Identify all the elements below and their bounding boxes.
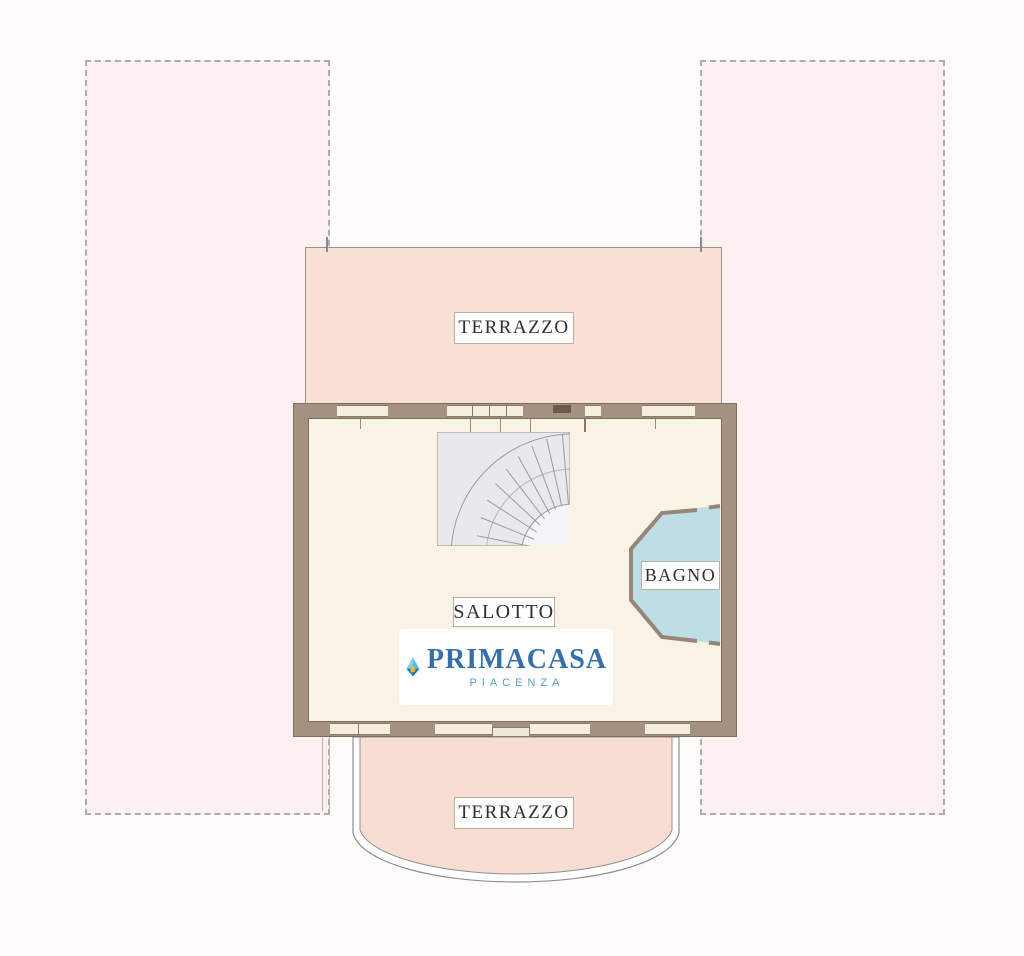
terrace-bottom-label: TERRAZZO (454, 797, 574, 829)
window (585, 405, 601, 417)
logo-text: PRIMACASA PIACENZA (427, 646, 607, 689)
window-sill-line (655, 419, 656, 429)
window-mullion (358, 723, 359, 735)
terrace-top-label-text: TERRAZZO (458, 317, 569, 339)
window-mullion (489, 405, 490, 417)
agency-logo: PRIMACASA PIACENZA (399, 629, 613, 705)
side-step-line (329, 737, 330, 811)
window-sill-line (500, 419, 501, 433)
staircase (437, 432, 570, 546)
window (447, 405, 523, 417)
bathroom-label: BAGNO (641, 561, 720, 590)
window (337, 405, 388, 417)
brand-name: PRIMACASA (427, 646, 607, 674)
partition-stub (584, 419, 586, 432)
side-step-line (322, 737, 323, 811)
window (530, 723, 590, 735)
terrace-top-label: TERRAZZO (454, 312, 574, 344)
wall-tick-right (700, 237, 702, 252)
pyramid-logo-icon (405, 637, 421, 697)
window-sill-line (470, 419, 471, 433)
window (642, 405, 695, 417)
window-mullion (506, 405, 507, 417)
brand-city: PIACENZA (469, 678, 564, 689)
window (330, 723, 390, 735)
window-sill-line (360, 419, 361, 429)
window-mullion (472, 405, 473, 417)
terrace-bottom-label-text: TERRAZZO (458, 802, 569, 824)
living-room-label: SALOTTO (453, 597, 555, 627)
living-room-label-text: SALOTTO (453, 601, 554, 624)
window-sill-line (530, 419, 531, 433)
wall-tick-left (326, 237, 328, 252)
bathroom-label-text: BAGNO (645, 565, 717, 586)
window (435, 723, 492, 735)
floor-plan: TERRAZZO SALOTTO BAGNO TERRAZZO PRIMACAS… (0, 0, 1024, 956)
window (645, 723, 690, 735)
entry-step (492, 727, 530, 737)
door-element (553, 405, 571, 413)
